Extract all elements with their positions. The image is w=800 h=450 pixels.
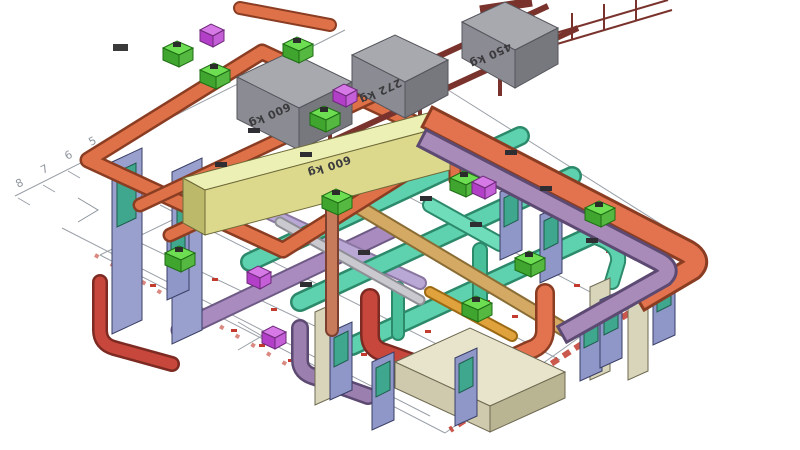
grid-label-7: 7 <box>38 162 50 177</box>
model-canvas[interactable]: 8 7 6 5 <box>0 0 800 450</box>
door-panel-4 <box>455 348 477 426</box>
equipment-box-272kg: 272 kg <box>352 35 448 118</box>
grid-label-6: 6 <box>62 148 74 163</box>
grid-label-8: 8 <box>13 176 25 191</box>
bim-viewport[interactable]: 8 7 6 5 <box>0 0 800 450</box>
door-panel-3 <box>372 352 394 430</box>
